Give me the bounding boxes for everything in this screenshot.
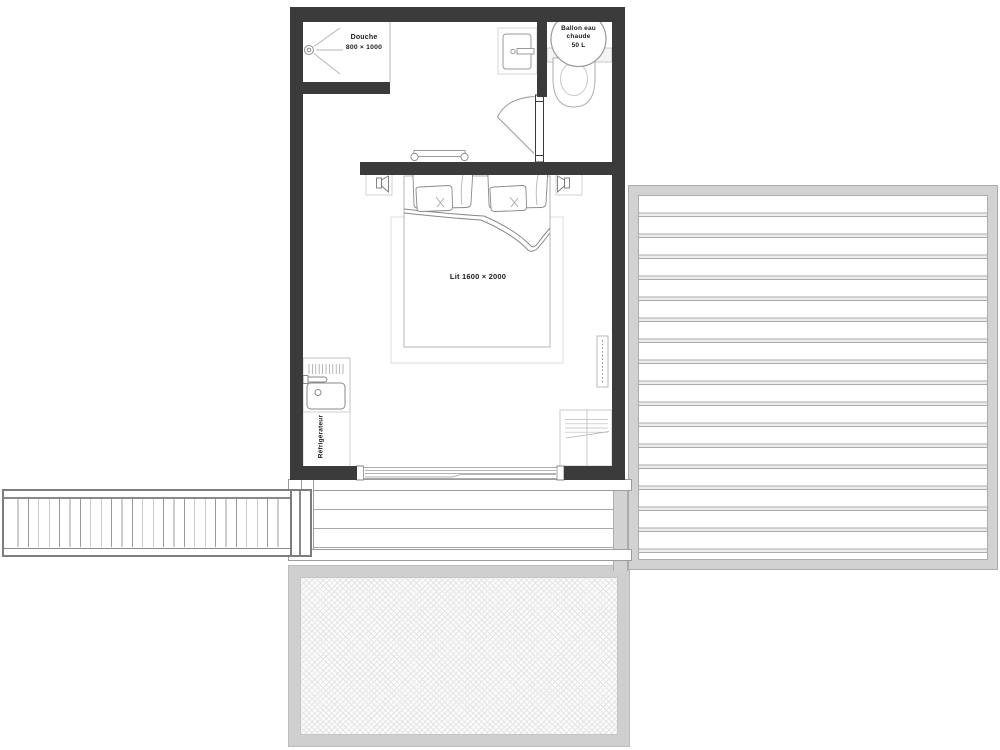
wall-exterior-bottom-right (564, 466, 625, 480)
floor-plan: Douche 800 × 1000 Ballon eau chaude 50 L… (0, 0, 1000, 750)
wall-wc-partition (537, 21, 547, 97)
shower-dimensions: 800 × 1000 (333, 43, 395, 53)
wall-interior-bedroom (360, 162, 612, 175)
bathroom-door (498, 95, 544, 162)
shower-name: Douche (333, 33, 395, 43)
bed (391, 173, 563, 364)
towel-rail (411, 151, 468, 161)
desk (560, 410, 612, 466)
wall-exterior-right (612, 7, 625, 480)
water-heater-label: Ballon eau chaude 50 L (551, 25, 606, 50)
wall-shower (297, 82, 390, 94)
radiator (597, 336, 608, 387)
wall-exterior-left (290, 7, 303, 480)
wall-exterior-top (290, 7, 625, 22)
washbasin (498, 28, 537, 74)
shower-label: Douche 800 × 1000 (333, 33, 395, 52)
fixtures-layer (0, 0, 1000, 750)
pillow-left-front (416, 186, 453, 212)
sliding-door (357, 466, 565, 480)
refrigerator-label: Réfrigérateur (318, 395, 329, 479)
pillow-right-front (490, 186, 527, 212)
bed-label: Lit 1600 × 2000 (427, 272, 529, 281)
